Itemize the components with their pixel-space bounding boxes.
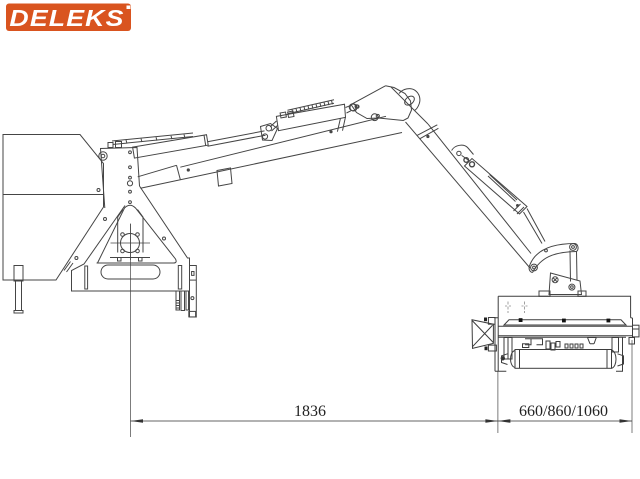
svg-text:660/860/1060: 660/860/1060 [519,403,608,420]
svg-text:DELEKS: DELEKS [9,6,124,32]
svg-text:1836: 1836 [294,403,326,420]
